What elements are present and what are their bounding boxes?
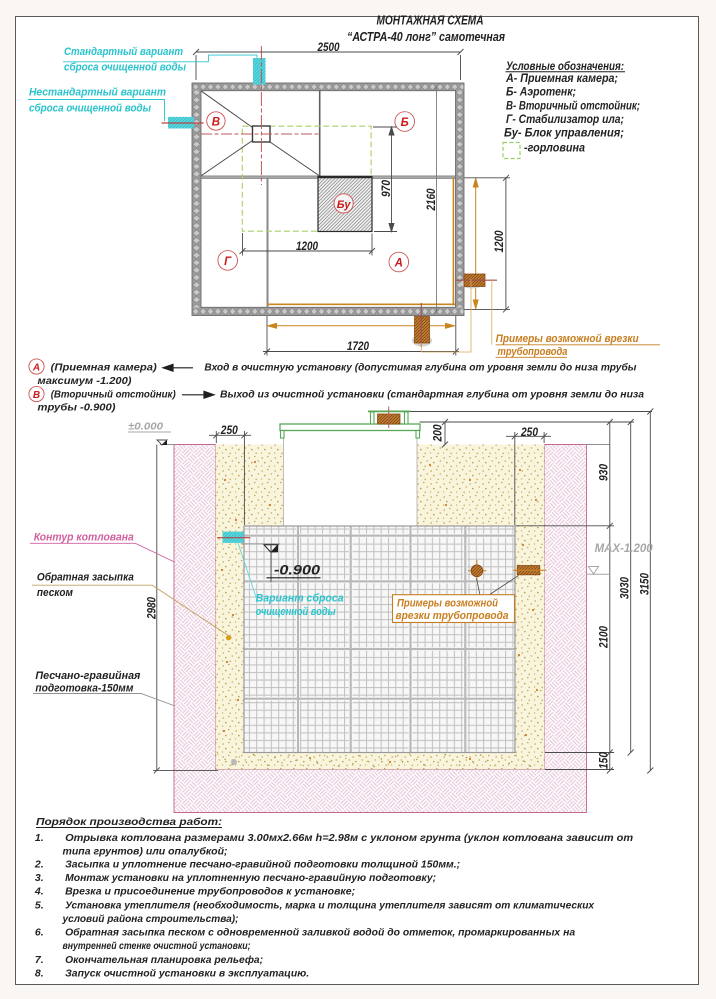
svg-text:внутренней стенке очистной уст: внутренней стенке очистной установки;: [63, 940, 251, 952]
svg-text:Установка утеплителя (необходи: Установка утеплителя (необходимость, мар…: [65, 900, 595, 912]
svg-text:В- Вторичный отстойник;: В- Вторичный отстойник;: [506, 100, 640, 112]
svg-text:А: А: [394, 258, 403, 270]
svg-text:МОНТАЖНАЯ СХЕМА: МОНТАЖНАЯ СХЕМА: [377, 13, 484, 28]
svg-text:6.: 6.: [35, 927, 44, 939]
svg-text:Окончательная планировка релье: Окончательная планировка рельефа;: [65, 954, 263, 966]
svg-text:Обратная засыпка: Обратная засыпка: [37, 572, 134, 584]
svg-text:Порядок производства работ:: Порядок производства работ:: [36, 816, 222, 828]
svg-text:сброса очищенной воды: сброса очищенной воды: [64, 62, 187, 74]
svg-text:(Вторичный отстойник): (Вторичный отстойник): [51, 390, 177, 401]
svg-text:-горловина: -горловина: [524, 142, 586, 154]
svg-text:Примеры возможной врезки: Примеры возможной врезки: [496, 333, 639, 345]
svg-text:1200: 1200: [492, 230, 506, 252]
svg-text:3.: 3.: [35, 872, 44, 884]
svg-text:Б: Б: [401, 117, 409, 129]
svg-text:2160: 2160: [424, 188, 438, 211]
svg-text:8.: 8.: [35, 968, 44, 980]
svg-text:1.: 1.: [35, 832, 44, 844]
svg-text:(Приемная камера): (Приемная камера): [51, 363, 158, 374]
svg-text:5.: 5.: [35, 900, 44, 912]
svg-text:трубопровода: трубопровода: [498, 346, 568, 358]
svg-text:типа грунтов) или опалубкой;: типа грунтов) или опалубкой;: [63, 845, 228, 857]
svg-text:Стандартный вариант: Стандартный вариант: [64, 46, 183, 58]
svg-text:250: 250: [520, 425, 538, 439]
svg-text:сброса очищенной воды: сброса очищенной воды: [29, 103, 152, 115]
svg-text:В: В: [212, 117, 220, 129]
svg-text:Вариант сброса: Вариант сброса: [256, 593, 344, 605]
svg-text:2100: 2100: [597, 626, 611, 649]
svg-text:2.: 2.: [34, 859, 44, 871]
svg-text:3030: 3030: [618, 577, 632, 599]
svg-text:врезки трубопровода: врезки трубопровода: [396, 610, 509, 622]
svg-text:Монтаж установки на уплотненну: Монтаж установки на уплотненную песчано-…: [65, 872, 436, 884]
svg-text:970: 970: [379, 180, 393, 197]
svg-text:трубы -0.900): трубы -0.900): [38, 402, 117, 414]
svg-text:А- Приемная камера;: А- Приемная камера;: [505, 73, 618, 85]
svg-text:Примеры возможной: Примеры возможной: [397, 597, 498, 609]
svg-text:Бу: Бу: [337, 199, 352, 211]
svg-text:MAX-1.200: MAX-1.200: [595, 543, 654, 555]
svg-text:В: В: [33, 390, 40, 401]
svg-text:Нестандартный вариант: Нестандартный вариант: [29, 87, 166, 99]
svg-text:Отрывка котлована размерами 3.: Отрывка котлована размерами 3.00мх2.66м …: [65, 832, 633, 844]
svg-text:условий района строительства);: условий района строительства);: [62, 913, 239, 925]
svg-text:“АСТРА-40 лонг” самотечная: “АСТРА-40 лонг” самотечная: [347, 29, 505, 44]
svg-text:Г: Г: [224, 256, 232, 268]
svg-text:7.: 7.: [35, 954, 44, 966]
svg-text:2980: 2980: [145, 597, 159, 620]
svg-text:максимум -1.200): максимум -1.200): [38, 376, 133, 387]
svg-text:±0.000: ±0.000: [128, 421, 163, 433]
svg-text:150: 150: [597, 752, 611, 769]
svg-text:очищенной воды: очищенной воды: [256, 606, 337, 618]
svg-text:1200: 1200: [296, 239, 318, 253]
svg-text:Запуск очистной установки в эк: Запуск очистной установки в эксплуатацию…: [65, 968, 309, 980]
svg-text:подготовка-150мм: подготовка-150мм: [35, 682, 133, 694]
svg-text:Засыпка и уплотнение песчано-г: Засыпка и уплотнение песчано-гравийной п…: [65, 859, 460, 871]
svg-text:Врезка и присоединение трубопр: Врезка и присоединение трубопроводов к у…: [65, 885, 355, 897]
svg-text:Б- Аэротенк;: Б- Аэротенк;: [506, 87, 576, 99]
svg-text:Обратная засыпка песком с одно: Обратная засыпка песком с одновременной …: [65, 927, 575, 939]
svg-text:-0.900: -0.900: [274, 562, 320, 578]
svg-text:Бу- Блок управления;: Бу- Блок управления;: [504, 128, 624, 140]
svg-text:Вход в очистную установку (доп: Вход в очистную установку (допустимая гл…: [204, 362, 636, 374]
svg-text:Выход из очистной установки (с: Выход из очистной установки (стандартная…: [220, 389, 644, 401]
svg-text:Условные обозначения:: Условные обозначения:: [506, 61, 624, 73]
svg-text:1720: 1720: [347, 339, 369, 353]
svg-text:2500: 2500: [317, 40, 340, 54]
svg-text:930: 930: [597, 464, 611, 481]
svg-text:Контур котлована: Контур котлована: [34, 532, 134, 544]
svg-text:Песчано-гравийная: Песчано-гравийная: [35, 670, 141, 682]
svg-text:4.: 4.: [34, 885, 44, 897]
svg-text:Г- Стабилизатор ила;: Г- Стабилизатор ила;: [506, 114, 624, 126]
svg-text:200: 200: [431, 424, 445, 442]
svg-text:3150: 3150: [638, 573, 652, 595]
svg-text:А: А: [32, 362, 40, 373]
svg-text:песком: песком: [37, 587, 73, 599]
